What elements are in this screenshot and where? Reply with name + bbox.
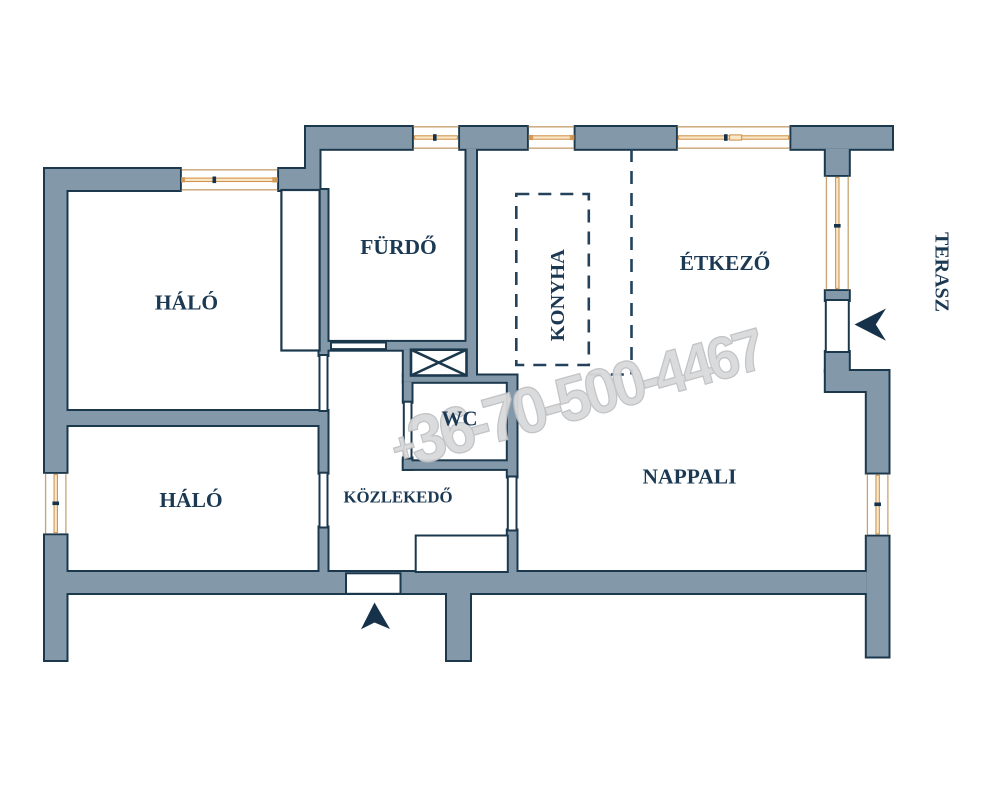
svg-text:ÉTKEZŐ: ÉTKEZŐ: [680, 251, 771, 275]
svg-text:HÁLÓ: HÁLÓ: [159, 488, 222, 512]
svg-text:FÜRDŐ: FÜRDŐ: [360, 235, 436, 259]
svg-text:WC: WC: [441, 407, 477, 431]
svg-text:KÖZLEKEDŐ: KÖZLEKEDŐ: [343, 488, 452, 507]
svg-text:HÁLÓ: HÁLÓ: [155, 291, 218, 315]
svg-text:NAPPALI: NAPPALI: [643, 465, 737, 489]
svg-text:KONYHA: KONYHA: [547, 249, 569, 341]
svg-text:TERASZ: TERASZ: [931, 232, 953, 312]
